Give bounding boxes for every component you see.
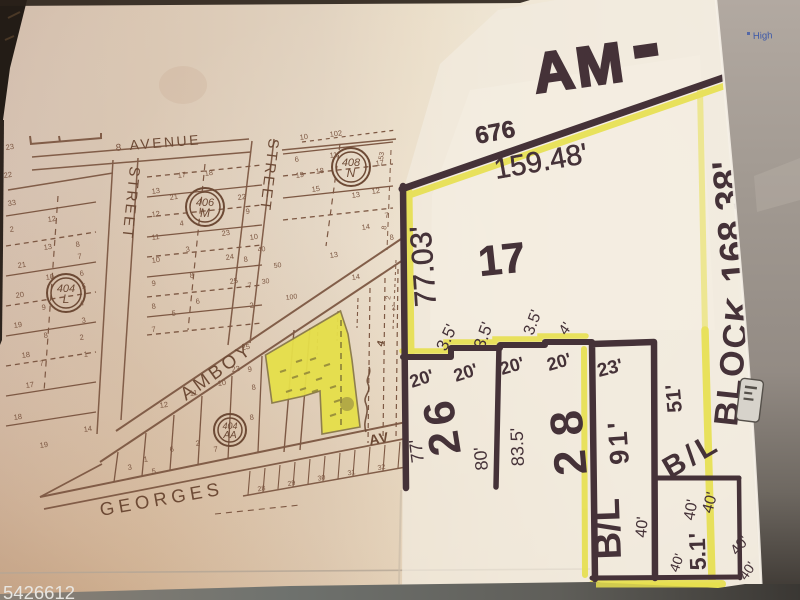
svg-text:5.1': 5.1' bbox=[684, 532, 711, 570]
svg-text:11: 11 bbox=[329, 150, 338, 160]
svg-text:21: 21 bbox=[169, 192, 179, 202]
svg-text:13: 13 bbox=[329, 250, 339, 260]
svg-text:14: 14 bbox=[351, 272, 361, 282]
svg-text:40: 40 bbox=[257, 246, 266, 254]
svg-text:13: 13 bbox=[151, 186, 161, 196]
svg-text:22: 22 bbox=[237, 192, 247, 202]
svg-text:High: High bbox=[753, 30, 773, 42]
svg-text:77.03': 77.03' bbox=[404, 225, 443, 308]
svg-text:18: 18 bbox=[315, 166, 325, 176]
svg-text:12: 12 bbox=[159, 400, 169, 410]
svg-text:12: 12 bbox=[151, 209, 161, 219]
svg-text:23: 23 bbox=[231, 364, 241, 374]
svg-text:33: 33 bbox=[7, 198, 17, 208]
svg-text:25: 25 bbox=[229, 276, 239, 286]
svg-text:32: 32 bbox=[377, 464, 386, 472]
svg-text:AA: AA bbox=[222, 430, 237, 441]
svg-text:24: 24 bbox=[225, 252, 235, 262]
svg-text:51': 51' bbox=[662, 383, 687, 413]
svg-text:12: 12 bbox=[47, 214, 57, 224]
svg-text:102: 102 bbox=[329, 128, 343, 139]
svg-text:21: 21 bbox=[17, 260, 27, 270]
svg-text:19: 19 bbox=[39, 440, 49, 450]
svg-text:91': 91' bbox=[602, 418, 635, 465]
svg-text:31: 31 bbox=[347, 469, 356, 477]
svg-text:18: 18 bbox=[21, 350, 31, 360]
svg-text:19: 19 bbox=[295, 170, 305, 180]
svg-text:23: 23 bbox=[221, 228, 231, 238]
svg-text:40': 40' bbox=[633, 516, 652, 538]
svg-text:15: 15 bbox=[311, 184, 321, 194]
svg-text:29: 29 bbox=[287, 480, 296, 488]
svg-text:30: 30 bbox=[317, 474, 326, 482]
svg-text:10: 10 bbox=[249, 232, 259, 242]
svg-text:53: 53 bbox=[378, 151, 386, 160]
svg-text:10: 10 bbox=[151, 255, 161, 265]
svg-text:5426612: 5426612 bbox=[3, 582, 75, 600]
svg-text:M: M bbox=[200, 206, 210, 220]
svg-text:13: 13 bbox=[43, 242, 53, 252]
svg-text:18: 18 bbox=[204, 168, 214, 178]
svg-text:30: 30 bbox=[261, 278, 270, 286]
svg-text:L: L bbox=[63, 292, 70, 306]
svg-text:14: 14 bbox=[83, 424, 93, 434]
svg-text:10: 10 bbox=[45, 272, 55, 282]
svg-text:28: 28 bbox=[257, 485, 266, 493]
svg-text:14: 14 bbox=[361, 222, 371, 232]
svg-text:80': 80' bbox=[470, 446, 492, 471]
svg-text:10: 10 bbox=[217, 378, 227, 388]
svg-text:28: 28 bbox=[538, 394, 597, 477]
svg-text:AM: AM bbox=[529, 30, 630, 105]
svg-text:40': 40' bbox=[681, 498, 701, 521]
svg-text:19: 19 bbox=[13, 320, 23, 330]
svg-text:50: 50 bbox=[273, 262, 282, 270]
svg-text:18: 18 bbox=[13, 412, 23, 422]
svg-text:10: 10 bbox=[299, 132, 309, 142]
svg-text:20: 20 bbox=[15, 290, 25, 300]
svg-text:22: 22 bbox=[3, 170, 13, 180]
svg-text:11: 11 bbox=[151, 232, 160, 242]
svg-text:83.5': 83.5' bbox=[507, 427, 528, 466]
svg-text:B/L: B/L bbox=[586, 498, 630, 561]
svg-text:17: 17 bbox=[476, 233, 527, 285]
svg-text:17: 17 bbox=[25, 380, 35, 390]
svg-text:12: 12 bbox=[371, 186, 381, 196]
svg-text:17: 17 bbox=[177, 170, 187, 180]
svg-text:77': 77' bbox=[405, 438, 428, 464]
svg-text:13: 13 bbox=[351, 190, 361, 200]
svg-text:23: 23 bbox=[5, 142, 15, 152]
svg-text:11: 11 bbox=[189, 388, 198, 398]
svg-text:25: 25 bbox=[241, 342, 251, 352]
svg-text:N: N bbox=[347, 166, 356, 180]
